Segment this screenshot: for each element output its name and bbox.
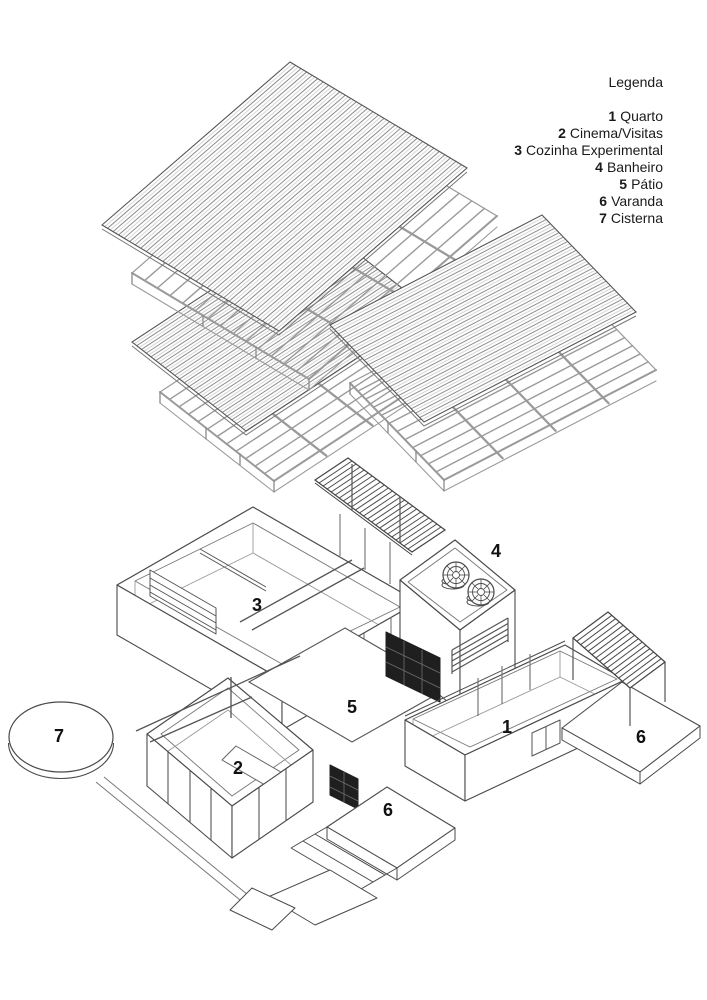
plan-label-cozinha: 3 xyxy=(252,595,262,615)
legend-item: 3Cozinha Experimental xyxy=(514,142,663,159)
legend-item: 6Varanda xyxy=(514,193,663,210)
plan-label-quarto: 1 xyxy=(502,717,512,737)
plan-label-cisterna: 7 xyxy=(54,726,64,746)
legend: Legenda 1Quarto 2Cinema/Visitas 3Cozinha… xyxy=(514,74,663,227)
legend-item: 1Quarto xyxy=(514,108,663,125)
turbine-vent-icon xyxy=(442,562,469,589)
plan-label-banheiro: 4 xyxy=(491,541,501,561)
legend-item: 7Cisterna xyxy=(514,210,663,227)
turbine-vent-icon xyxy=(467,579,494,606)
plan-label-patio: 5 xyxy=(347,697,357,717)
plan-label-varanda-lower: 6 xyxy=(383,800,393,820)
legend-item: 2Cinema/Visitas xyxy=(514,125,663,142)
legend-item: 5Pátio xyxy=(514,176,663,193)
legend-title: Legenda xyxy=(514,74,663,91)
legend-item: 4Banheiro xyxy=(514,159,663,176)
plan-label-cinema: 2 xyxy=(233,758,243,778)
drawing-canvas: 1 2 3 4 5 6 6 7 Legenda 1Quarto 2Cinema/… xyxy=(0,0,707,1000)
screen-wall-cinema xyxy=(330,765,358,809)
plan-label-varanda-right: 6 xyxy=(636,727,646,747)
